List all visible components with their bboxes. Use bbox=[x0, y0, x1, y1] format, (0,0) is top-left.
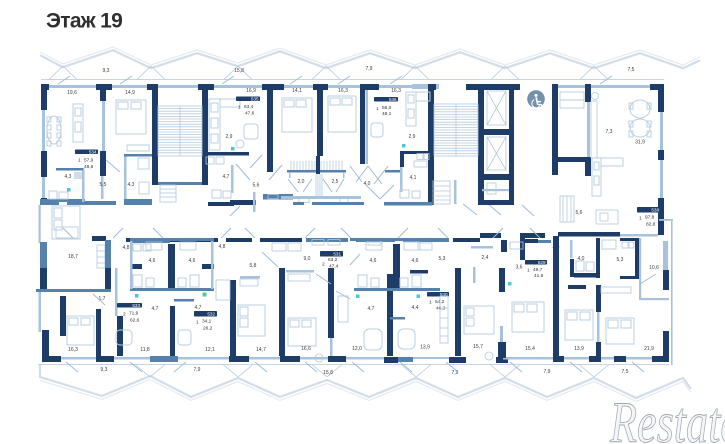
svg-text:16,3: 16,3 bbox=[338, 88, 348, 94]
svg-text:46,3: 46,3 bbox=[436, 306, 446, 312]
svg-text:533: 533 bbox=[132, 303, 140, 308]
svg-text:4,7: 4,7 bbox=[223, 174, 230, 180]
svg-text:71,9: 71,9 bbox=[129, 311, 139, 317]
svg-text:26,2: 26,2 bbox=[203, 326, 213, 332]
svg-text:14,1: 14,1 bbox=[292, 88, 302, 94]
svg-text:63,2: 63,2 bbox=[328, 257, 338, 263]
svg-text:5,6: 5,6 bbox=[253, 183, 260, 189]
svg-text:47,6: 47,6 bbox=[245, 110, 255, 116]
svg-text:1: 1 bbox=[639, 216, 642, 222]
svg-text:7,9: 7,9 bbox=[366, 66, 373, 72]
svg-text:11,8: 11,8 bbox=[140, 347, 150, 353]
svg-text:16,3: 16,3 bbox=[391, 88, 401, 94]
svg-text:1: 1 bbox=[527, 268, 530, 274]
svg-text:48,6: 48,6 bbox=[84, 164, 94, 170]
svg-text:4,6: 4,6 bbox=[412, 258, 419, 264]
svg-text:15,8: 15,8 bbox=[323, 370, 333, 376]
svg-text:7,5: 7,5 bbox=[628, 67, 635, 73]
svg-text:4,4: 4,4 bbox=[412, 305, 419, 311]
svg-text:16,6: 16,6 bbox=[301, 346, 311, 352]
svg-text:4,6: 4,6 bbox=[370, 258, 377, 264]
svg-text:531: 531 bbox=[333, 252, 341, 257]
svg-text:1: 1 bbox=[238, 105, 241, 111]
svg-text:538: 538 bbox=[651, 208, 659, 213]
svg-text:49,7: 49,7 bbox=[533, 267, 543, 273]
svg-text:57,9: 57,9 bbox=[84, 158, 94, 164]
svg-text:1: 1 bbox=[196, 320, 199, 326]
svg-text:536: 536 bbox=[389, 97, 397, 102]
svg-text:14,7: 14,7 bbox=[256, 347, 266, 353]
svg-text:4,6: 4,6 bbox=[149, 258, 156, 264]
svg-text:12,0: 12,0 bbox=[352, 346, 362, 352]
svg-text:1: 1 bbox=[78, 158, 81, 164]
svg-text:4,8: 4,8 bbox=[123, 245, 130, 251]
svg-text:82,8: 82,8 bbox=[646, 222, 656, 228]
svg-text:16,9: 16,9 bbox=[246, 88, 256, 94]
svg-text:4,3: 4,3 bbox=[65, 174, 72, 180]
svg-text:2,5: 2,5 bbox=[332, 179, 339, 185]
svg-text:12,1: 12,1 bbox=[205, 347, 215, 353]
svg-text:5,3: 5,3 bbox=[439, 256, 446, 262]
svg-text:15,4: 15,4 bbox=[525, 346, 535, 352]
svg-text:4,6: 4,6 bbox=[189, 258, 196, 264]
svg-text:56,0: 56,0 bbox=[382, 105, 392, 111]
svg-text:Этаж 19: Этаж 19 bbox=[46, 10, 122, 33]
svg-text:63,4: 63,4 bbox=[244, 104, 254, 110]
svg-text:4,7: 4,7 bbox=[152, 306, 159, 312]
svg-text:2,9: 2,9 bbox=[409, 134, 416, 140]
svg-text:7,9: 7,9 bbox=[194, 367, 201, 373]
svg-text:62,6: 62,6 bbox=[130, 318, 140, 324]
svg-text:529: 529 bbox=[538, 260, 546, 265]
svg-text:3,6: 3,6 bbox=[516, 265, 523, 271]
svg-text:2,9: 2,9 bbox=[226, 134, 233, 140]
svg-text:2: 2 bbox=[123, 312, 126, 318]
svg-text:34,1: 34,1 bbox=[202, 319, 212, 325]
svg-text:7,5: 7,5 bbox=[622, 369, 629, 375]
svg-text:15,8: 15,8 bbox=[234, 68, 244, 74]
svg-text:1,7: 1,7 bbox=[99, 296, 106, 302]
svg-text:19,6: 19,6 bbox=[67, 90, 77, 96]
svg-text:15,7: 15,7 bbox=[473, 344, 483, 350]
svg-text:7,3: 7,3 bbox=[606, 129, 613, 135]
svg-text:4,8: 4,8 bbox=[219, 244, 226, 250]
svg-text:5,8: 5,8 bbox=[250, 263, 257, 269]
svg-text:21,9: 21,9 bbox=[644, 346, 654, 352]
svg-text:Restate: Restate bbox=[609, 390, 725, 444]
svg-text:14,9: 14,9 bbox=[125, 90, 135, 96]
svg-text:4,3: 4,3 bbox=[128, 182, 135, 188]
svg-text:16,3: 16,3 bbox=[68, 347, 78, 353]
svg-text:4,1: 4,1 bbox=[410, 175, 417, 181]
svg-text:5,3: 5,3 bbox=[617, 257, 624, 263]
svg-text:2,4: 2,4 bbox=[482, 255, 489, 261]
svg-text:97,8: 97,8 bbox=[645, 215, 655, 221]
svg-text:5,6: 5,6 bbox=[576, 210, 583, 216]
svg-text:532: 532 bbox=[207, 312, 215, 317]
svg-text:41,8: 41,8 bbox=[534, 273, 544, 279]
svg-text:18,7: 18,7 bbox=[68, 254, 78, 260]
svg-text:9,3: 9,3 bbox=[101, 367, 108, 373]
svg-text:1: 1 bbox=[376, 106, 379, 112]
svg-text:535: 535 bbox=[251, 96, 259, 101]
svg-text:10,6: 10,6 bbox=[649, 265, 659, 271]
svg-text:4,7: 4,7 bbox=[195, 305, 202, 311]
svg-text:534: 534 bbox=[89, 149, 97, 154]
svg-text:5,5: 5,5 bbox=[100, 182, 107, 188]
svg-text:1: 1 bbox=[429, 300, 432, 306]
svg-text:9,3: 9,3 bbox=[103, 68, 110, 74]
svg-text:2: 2 bbox=[322, 262, 325, 268]
svg-text:2,0: 2,0 bbox=[298, 179, 305, 185]
svg-text:13,9: 13,9 bbox=[574, 346, 584, 352]
svg-text:9,0: 9,0 bbox=[304, 256, 311, 262]
svg-text:48,1: 48,1 bbox=[382, 111, 392, 117]
svg-text:4,7: 4,7 bbox=[368, 306, 375, 312]
svg-text:31,9: 31,9 bbox=[635, 140, 645, 146]
svg-text:7,9: 7,9 bbox=[544, 369, 551, 375]
svg-text:7,9: 7,9 bbox=[452, 370, 459, 376]
svg-text:13,9: 13,9 bbox=[420, 345, 430, 351]
